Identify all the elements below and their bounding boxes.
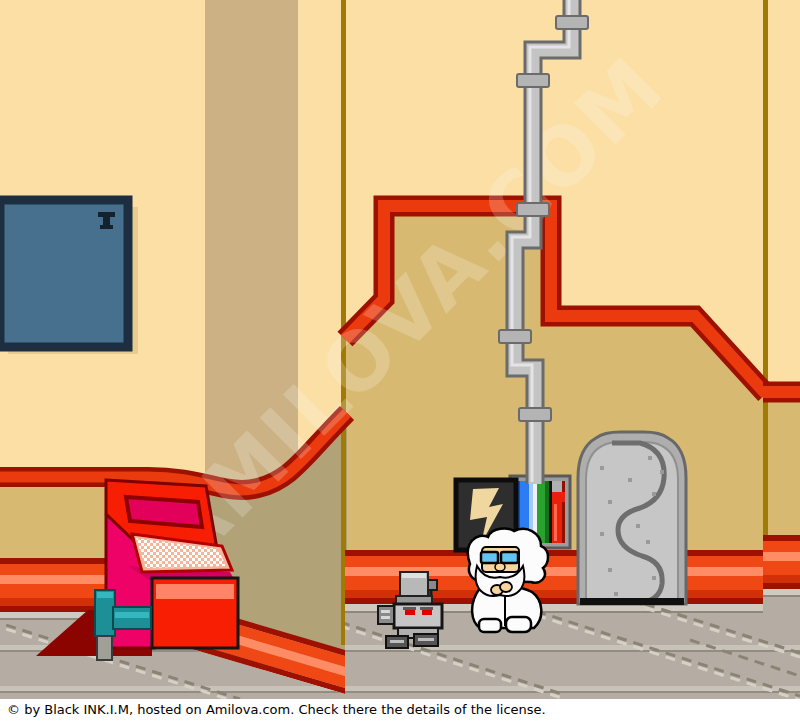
blue-wall-panel[interactable] (0, 200, 138, 354)
license-caption-text: © by Black INK.I.M, hosted on Amilova.co… (7, 702, 546, 717)
metal-door[interactable] (578, 432, 686, 605)
game-screenshot: AMILOVA.COM (0, 0, 800, 721)
scientist-nose (495, 563, 505, 571)
console-box (152, 578, 238, 648)
console-screen (126, 497, 202, 527)
scene-canvas: AMILOVA.COM (0, 0, 800, 699)
robot-hat (396, 572, 432, 604)
door-threshold (580, 598, 684, 605)
robot-arm (378, 606, 394, 624)
corner-line-right (763, 0, 768, 545)
scientist-character[interactable] (468, 529, 548, 632)
license-caption: © by Black INK.I.M, hosted on Amilova.co… (0, 699, 800, 721)
robot-head (394, 604, 442, 628)
